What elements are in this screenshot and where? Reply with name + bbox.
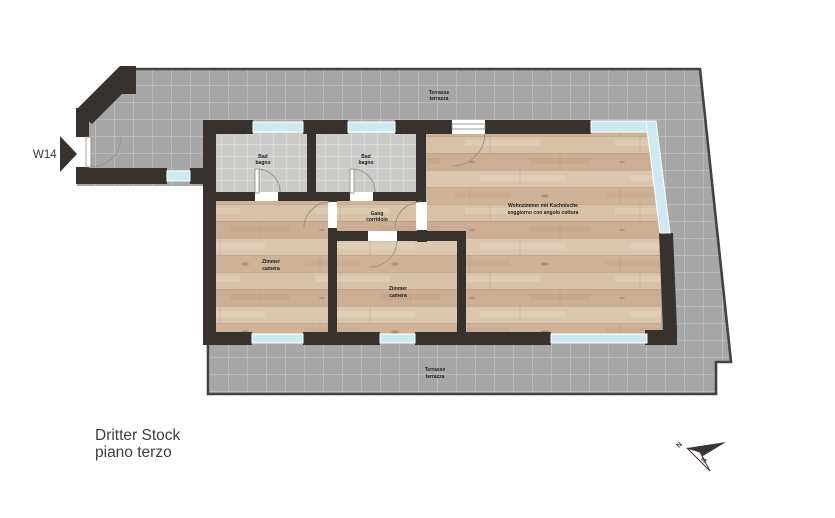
door-gap: [328, 202, 337, 228]
wall-segment: [485, 120, 591, 134]
floor-plan-page: Terrasse terrazza Bad bagno Bad bagno Ga…: [0, 0, 835, 518]
wall-segment: [337, 231, 368, 241]
wall-segment: [457, 233, 466, 334]
wall-segment: [76, 168, 167, 184]
window: [348, 122, 395, 132]
label-terrace-bottom-it: terrazza: [426, 374, 445, 380]
label-hall-it: corridoio: [366, 217, 388, 223]
label-living-it: soggiorno con angolo cottura: [508, 210, 579, 216]
compass: N S: [675, 441, 726, 471]
window: [380, 334, 415, 343]
compass-south-label: S: [700, 456, 708, 465]
label-bedroom-left-de: Zimmer: [262, 259, 280, 265]
wall-segment: [328, 192, 337, 202]
window: [167, 171, 190, 181]
label-living-de: Wohnzimmer mit Kochnische: [508, 203, 578, 209]
door-leaf: [255, 169, 259, 193]
wall-segment: [76, 108, 89, 138]
wall-segment: [397, 231, 466, 241]
wall-segment: [645, 330, 677, 345]
door-leaf: [86, 137, 91, 167]
wall-segment: [215, 192, 255, 201]
label-terrace-bottom-de: Terrasse: [425, 367, 446, 373]
wall-segment: [203, 120, 253, 134]
door-leaf: [452, 124, 485, 129]
floor-title-de: Dritter Stock: [95, 427, 181, 444]
wall-segment: [307, 130, 316, 196]
door-leaf: [350, 169, 354, 193]
label-terrace-top-it: terrazza: [430, 96, 449, 102]
entrance-arrow-icon: [60, 136, 77, 172]
label-bedroom-right-it: camera: [389, 293, 407, 299]
wall-segment: [416, 130, 426, 202]
floor-title: Dritter Stock piano terzo: [95, 427, 181, 461]
door-gap: [368, 231, 397, 241]
entrance-marker: W14: [33, 136, 77, 172]
window: [252, 334, 303, 343]
window: [591, 121, 648, 132]
label-bath-left-it: bagno: [256, 160, 271, 166]
floor-title-it: piano terzo: [95, 444, 172, 461]
floor-plan: Terrasse terrazza Bad bagno Bad bagno Ga…: [0, 0, 835, 518]
label-bath-right-it: bagno: [359, 160, 374, 166]
wall-segment: [303, 332, 380, 345]
wall-segment: [415, 332, 551, 345]
wall-segment: [203, 120, 216, 345]
label-bedroom-right-de: Zimmer: [389, 286, 407, 292]
window: [551, 334, 647, 343]
wall-segment: [203, 332, 252, 345]
label-bedroom-left-it: camera: [262, 266, 280, 272]
window: [253, 122, 303, 132]
door-gap: [416, 202, 427, 230]
wall-segment: [328, 228, 337, 334]
unit-label: W14: [33, 149, 57, 161]
compass-north-label: N: [675, 441, 683, 450]
